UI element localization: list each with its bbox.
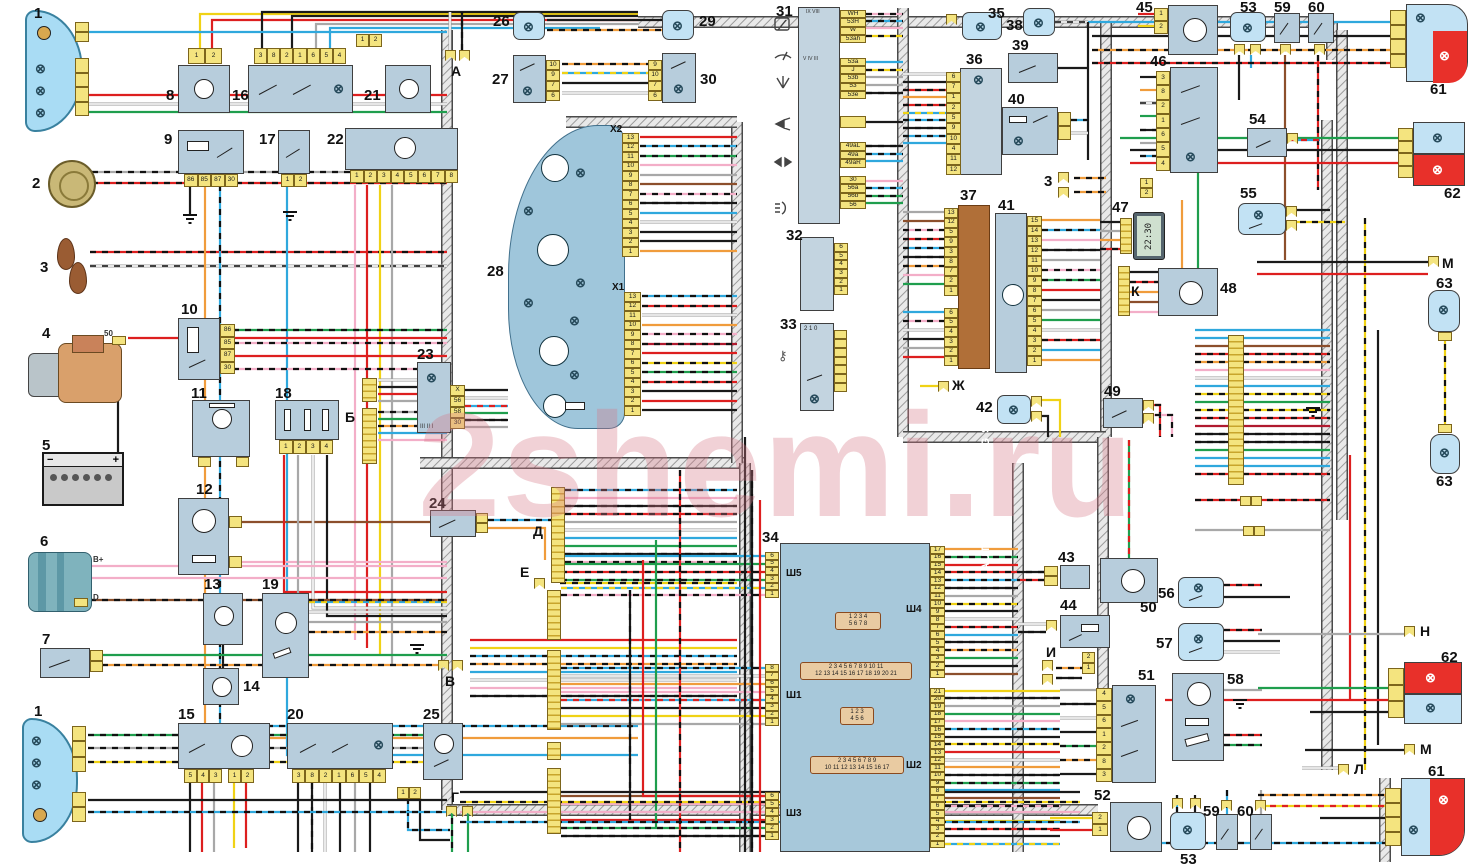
- pins-sh1: 87654321: [765, 664, 779, 726]
- relay-8: [178, 65, 230, 113]
- pin-label: 6: [648, 91, 662, 101]
- pins-40: [1058, 112, 1071, 140]
- pin-cell: [90, 661, 103, 672]
- sensor-icon: [192, 555, 216, 563]
- switch-icon: [1255, 829, 1263, 840]
- switch-icon: [1112, 410, 1127, 418]
- component-number: 4: [42, 326, 50, 341]
- pin-cell: [834, 383, 847, 392]
- column-switch-icons: [772, 16, 794, 216]
- pins-43: [1044, 566, 1058, 586]
- pins-31c: 49aL49a49aR: [840, 142, 866, 168]
- motor-icon: [1121, 569, 1145, 593]
- pins-36: 6712591041112: [946, 72, 961, 175]
- pin-11b: [236, 457, 249, 467]
- pin-label: 12: [622, 143, 639, 153]
- pin-label: 5: [930, 810, 945, 818]
- pins-20: 3821654: [292, 769, 386, 783]
- pin-label: 3: [209, 769, 222, 783]
- pins-31a: WH53HW53ah: [840, 10, 866, 43]
- switch-icon: [293, 85, 311, 95]
- component-number: 25: [423, 707, 440, 722]
- internal-plug-1: 1 2 3 4 5 6 7 8: [835, 612, 881, 630]
- resistor-icon: [1184, 733, 1209, 747]
- key-icon: ⚷: [778, 348, 788, 364]
- pin-label: 5: [1156, 142, 1170, 156]
- pin-label: 2: [364, 170, 378, 183]
- pin-label: 2: [205, 48, 222, 64]
- pin-label: 3: [765, 816, 779, 824]
- connector-strip-K: [1118, 266, 1130, 316]
- pin-cell: [1044, 566, 1058, 576]
- pins-32: 654321: [834, 243, 848, 295]
- pin-label: 4: [834, 260, 848, 269]
- pin-12a: [229, 516, 242, 528]
- pin-label: 1: [1140, 178, 1153, 188]
- connector-strip-E4: [547, 768, 561, 834]
- lamp-icon: ⊗: [1438, 303, 1449, 316]
- pin-label: 7: [930, 624, 945, 632]
- point-label-ZH: Ж: [952, 378, 965, 392]
- pin-label: 8: [1096, 755, 1112, 768]
- pin-label: 6: [1156, 128, 1170, 142]
- pin-label: 6: [834, 243, 848, 252]
- component-number: 33: [780, 317, 797, 332]
- lamp-icon: ⊗: [575, 166, 586, 179]
- pin-label: 9: [1027, 276, 1042, 286]
- pins-17: 12: [281, 174, 307, 187]
- rear-lamp-62b-blue: ⊗: [1404, 694, 1462, 724]
- pin-label: 4: [944, 327, 958, 337]
- pin-label: 9: [622, 171, 639, 181]
- pin-label: 13: [930, 749, 945, 757]
- pin-label: 6: [418, 170, 432, 183]
- pin-label: 1: [765, 590, 779, 598]
- pin-label: 11: [624, 311, 641, 321]
- pin-label: 12: [930, 757, 945, 765]
- pin-label: 1: [1156, 114, 1170, 128]
- sensor-14: [203, 668, 239, 705]
- pin-label: 6: [622, 200, 639, 210]
- plug-row: 2 3 4 5 6 7 8 9: [813, 758, 901, 765]
- pin-label: 1: [1154, 8, 1168, 21]
- motor-45: [1168, 5, 1218, 55]
- pin-label: 1: [293, 48, 306, 64]
- pin-label: 1: [397, 787, 409, 799]
- pin-starter-50: [112, 336, 126, 345]
- lamp-icon: ⊗: [1438, 793, 1449, 806]
- pins-21: 12: [356, 34, 382, 47]
- motor-21: [385, 65, 431, 113]
- relay-coil-icon: [187, 141, 209, 151]
- pin-cell: [75, 22, 89, 32]
- pin-cell: [229, 556, 242, 568]
- pin-label: 5: [624, 368, 641, 378]
- pins-31-horn: [840, 116, 866, 128]
- switch-20: ⊗: [287, 723, 393, 769]
- pin-label: 5: [359, 769, 372, 783]
- switch-icon: [1256, 140, 1271, 148]
- pin-label: 10: [1027, 266, 1042, 276]
- component-number: 5: [42, 438, 50, 453]
- pin-cell: [1398, 128, 1413, 141]
- pins-sh4: 1716151413121110987654321: [930, 546, 945, 678]
- connector-label-sh4: Ш4: [906, 604, 922, 615]
- pin-cell: [90, 650, 103, 661]
- pin-label: 14: [1027, 226, 1042, 236]
- pin-cell: [1388, 685, 1404, 702]
- component-number: 1: [34, 704, 42, 719]
- resistor-icon: [322, 409, 329, 431]
- motor-icon: [1127, 816, 1151, 840]
- clock-display: 22:30: [1137, 216, 1161, 256]
- motor-13: [203, 593, 243, 645]
- component-number: 2: [32, 176, 40, 191]
- pin-cell: [834, 365, 847, 374]
- pin-label: 7: [431, 170, 445, 183]
- pin-label: 10: [648, 70, 662, 80]
- ignition-coil-11: [192, 400, 250, 457]
- lamp-icon: ⊗: [569, 368, 580, 381]
- component-number: 63: [1436, 276, 1453, 291]
- pin-cell: [1438, 332, 1452, 341]
- rear-lamp-61-top: ⊗ ⊗: [1406, 4, 1468, 82]
- pin-label: WH: [840, 10, 866, 18]
- pin-label: 13: [944, 208, 958, 218]
- switch-icon: [520, 63, 535, 71]
- pins-51: 4561283: [1096, 688, 1112, 782]
- pins-7: [90, 650, 103, 672]
- pin-label: 10: [624, 321, 641, 331]
- component-number: 42: [976, 400, 993, 415]
- turn-signal-icon: [775, 158, 791, 166]
- pin-label: 1: [1082, 663, 1095, 674]
- component-number: 3: [1044, 174, 1052, 189]
- pin-label: 2: [280, 48, 293, 64]
- pin-label: 3: [944, 247, 958, 257]
- switch-icon: [332, 744, 348, 753]
- pin-label: 2: [622, 238, 639, 248]
- pin-label: 6: [546, 91, 560, 101]
- pin-label: 7: [1027, 296, 1042, 306]
- pin-label: 4: [930, 818, 945, 826]
- resistor-icon: [1185, 718, 1209, 726]
- pin-label: 5: [320, 48, 333, 64]
- pin-label: 12: [946, 165, 961, 175]
- pin-label: 2: [765, 711, 779, 719]
- pin-label: 7: [648, 81, 662, 91]
- point-label-D: Д: [533, 524, 543, 538]
- pin-cell: [1251, 496, 1262, 506]
- pin-label: 15: [930, 562, 945, 570]
- pin-generator-d: [74, 598, 88, 607]
- pin-label: 5: [1096, 701, 1112, 714]
- component-number: 62: [1444, 186, 1461, 201]
- pin-label: 8: [930, 616, 945, 624]
- pin-label: 8: [622, 181, 639, 191]
- pins-46: 3821654: [1156, 71, 1170, 171]
- pin-cell: [476, 513, 488, 523]
- pin-label: 7: [765, 672, 779, 680]
- internal-plug-3: 1 2 3 4 5 6: [840, 707, 874, 725]
- component-number: 18: [275, 386, 292, 401]
- pin-label: 13: [1027, 236, 1042, 246]
- switch-lamp-30: ⊗: [662, 53, 696, 103]
- point-label-B: Б: [345, 410, 355, 424]
- switch-39: [1008, 53, 1058, 83]
- pin-label: 4: [1156, 157, 1170, 171]
- switch-icon: [1189, 647, 1202, 653]
- switch-46: ⊗: [1170, 67, 1218, 173]
- pins-37b: 654321: [944, 308, 958, 366]
- pin-label: 4: [622, 219, 639, 229]
- component-number: 35: [988, 6, 1005, 21]
- pin-label: 5: [765, 800, 779, 808]
- battery-minus: −: [47, 454, 53, 466]
- pin-label: 56a: [840, 184, 866, 192]
- component-number: 36: [966, 52, 983, 67]
- pin-label: 9: [944, 237, 958, 247]
- component-number: 60: [1308, 0, 1325, 15]
- pin-label: 11: [930, 593, 945, 601]
- pin-label: 9: [930, 608, 945, 616]
- heating-system-37: AUTOMATIC HEATING SYSTEM: [958, 205, 990, 369]
- component-number: 13: [204, 577, 221, 592]
- pin-label: 6: [765, 552, 779, 560]
- component-number: 29: [699, 14, 716, 29]
- lamp-56: ⊗: [1178, 577, 1224, 608]
- component-number: 32: [786, 228, 803, 243]
- fog-lamp-icon: [37, 26, 51, 40]
- pin-label: 2: [946, 103, 961, 113]
- pin-label: 4: [765, 695, 779, 703]
- component-number: 49: [1104, 384, 1121, 399]
- lamp-icon: ⊗: [523, 204, 534, 217]
- lamp-icon: ⊗: [1439, 446, 1450, 459]
- switch-60-top: [1308, 13, 1334, 43]
- pin-label: 2: [293, 440, 307, 454]
- switch-lamp-27: ⊗: [513, 55, 546, 103]
- pin-label: 3: [930, 825, 945, 833]
- connector-strip-E3: [547, 742, 561, 760]
- gauge-icon: [543, 394, 567, 418]
- pin-label: 3: [930, 655, 945, 663]
- rear-lamp-62-top-red: ⊗: [1413, 154, 1465, 186]
- lamp-55: ⊗: [1238, 203, 1286, 235]
- switch-icon: [1181, 117, 1200, 125]
- connector-label-x2: X2: [610, 124, 622, 135]
- component-number: 21: [364, 88, 381, 103]
- pin-label: 19: [930, 703, 945, 711]
- horn-icon: [776, 118, 790, 130]
- switch-icon: [189, 744, 205, 753]
- pins-23: X565830: [450, 385, 465, 429]
- pin-label: 8: [267, 48, 280, 64]
- pin-label: 5: [404, 170, 418, 183]
- pin-label: 86: [220, 324, 235, 337]
- lamp-icon: ⊗: [523, 20, 534, 33]
- switch-icon: [1181, 85, 1200, 93]
- clock-47: 22:30: [1133, 212, 1165, 260]
- pin-cell: [72, 757, 86, 772]
- pin-label: 9: [648, 60, 662, 70]
- point-label-M: М: [1442, 256, 1454, 270]
- lamp-icon: ⊗: [1185, 150, 1196, 163]
- pins-45: 12: [1154, 8, 1168, 34]
- pins-24: [476, 513, 488, 533]
- pin-label: 87: [220, 349, 235, 362]
- component-number: 28: [487, 264, 504, 279]
- component-number: 51: [1138, 668, 1155, 683]
- component-number: 45: [1136, 0, 1153, 15]
- switch-icon: [439, 519, 456, 528]
- pin-label: 9: [624, 330, 641, 340]
- switch-icon: [1189, 595, 1202, 601]
- pin-label: 4: [765, 808, 779, 816]
- point-label-L: Л: [1354, 762, 1364, 776]
- lamp-icon: ⊗: [1439, 49, 1450, 62]
- fog-lamp-icon: [33, 808, 47, 822]
- switch-7: [40, 648, 90, 678]
- pin-label: 1: [281, 174, 294, 187]
- pin-label: 85: [220, 337, 235, 350]
- pin-label: 1: [228, 769, 241, 783]
- resistor-icon: [565, 402, 585, 410]
- connector-strip-B2: [362, 408, 377, 464]
- pin-label: 49aL: [840, 142, 866, 151]
- pin-label: 30: [220, 362, 235, 375]
- pin-cell: [75, 32, 89, 42]
- internal-plug-2: 2 3 4 5 6 7 8 9 10 11 12 13 14 15 16 17 …: [800, 662, 912, 680]
- pin-cell: [75, 73, 89, 88]
- resistor-icon: [1009, 116, 1027, 123]
- plug-row: 2 3 4 5 6 7 8 9 10 11: [803, 664, 909, 671]
- pin-63a: [1438, 332, 1452, 341]
- connector-strip-B1: [362, 378, 377, 402]
- gauge-icon: [537, 234, 569, 266]
- pin-label: 10: [546, 60, 560, 70]
- switch-49: [1103, 398, 1143, 428]
- component-number: 57: [1156, 636, 1173, 651]
- pin-label: 9: [946, 123, 961, 133]
- module-22: [345, 128, 458, 170]
- starter-solenoid: [72, 335, 104, 353]
- motor-icon: [231, 735, 253, 757]
- pin-label: 8: [1027, 286, 1042, 296]
- lamp-icon: ⊗: [1033, 16, 1044, 29]
- pin-label: 4: [624, 378, 641, 388]
- ignition-switch-33: 2 1 0 ⊗: [800, 323, 834, 411]
- pin-label: 2: [1082, 652, 1095, 663]
- pin-label: 13: [624, 292, 641, 302]
- switch-icon: [1033, 115, 1048, 123]
- pin-label: 7: [944, 267, 958, 277]
- lamp-57: ⊗: [1178, 623, 1224, 661]
- pins-sh5: 654321: [765, 552, 779, 598]
- battery: − +: [42, 452, 124, 506]
- pins-61b: [1385, 788, 1401, 846]
- resistor-block-18: [275, 400, 339, 440]
- connector-strip-E1: [547, 590, 561, 640]
- switch-icon: [1221, 829, 1229, 840]
- pin-label: 1: [624, 406, 641, 416]
- pin-label: 3: [254, 48, 267, 64]
- pin-label: 2: [624, 397, 641, 407]
- pin-cell: [840, 116, 866, 128]
- lamp-icon: ⊗: [31, 734, 42, 747]
- pin-label: 21: [930, 688, 945, 696]
- pins-headlamp2: [72, 726, 86, 772]
- lamp-icon: ⊗: [426, 371, 437, 384]
- pins-headlamp2b: [72, 792, 86, 822]
- pin-label: 8: [1156, 85, 1170, 99]
- mounting-block-34: [780, 543, 930, 852]
- component-number: 10: [181, 302, 198, 317]
- distributor-12: [178, 498, 229, 575]
- component-number: 50: [1140, 600, 1157, 615]
- pin-label: 2: [1156, 100, 1170, 114]
- lamp-icon: ⊗: [1193, 632, 1204, 645]
- relay-coil-icon: [187, 327, 199, 353]
- pin-cell: [1388, 668, 1404, 685]
- pin-label: 4: [373, 769, 386, 783]
- horn: [48, 160, 96, 208]
- lamp-icon: ⊗: [333, 82, 344, 95]
- pin-cell: [1398, 153, 1413, 166]
- motor-19: [262, 593, 309, 678]
- pin-label: 1: [622, 247, 639, 257]
- gauge-icon: [539, 336, 569, 366]
- connector-label-sh3: Ш3: [786, 808, 802, 819]
- pin-label: 6: [944, 308, 958, 318]
- component-number: 7: [42, 632, 50, 647]
- pin-label: 5: [765, 687, 779, 695]
- coil-icon: [212, 409, 232, 429]
- lamp-icon: ⊗: [1182, 823, 1193, 836]
- pin-label: J: [840, 66, 866, 74]
- license-lamp-63a: ⊗: [1428, 290, 1460, 332]
- pin-cell: [1058, 126, 1071, 140]
- point-label-G: Г: [451, 790, 459, 804]
- pin-label: 53b: [840, 74, 866, 82]
- lamp-icon: ⊗: [1013, 134, 1024, 147]
- lamp-icon: ⊗: [575, 276, 586, 289]
- pin-cell: [1388, 701, 1404, 718]
- pins-62b: [1388, 668, 1404, 718]
- pins-sh3: 654321: [765, 792, 779, 840]
- pin-label: 12: [1027, 246, 1042, 256]
- pin-cell: [1385, 803, 1401, 818]
- pin-label: 4: [333, 48, 346, 64]
- plug-row: 5 6 7 8: [838, 621, 878, 628]
- pin-label: 53: [840, 83, 866, 91]
- component-number: 61: [1430, 82, 1447, 97]
- pin-label: 2: [1096, 742, 1112, 755]
- pin-label: 7: [946, 82, 961, 92]
- switch-icon: [300, 744, 316, 753]
- pin-label: 2: [834, 278, 848, 287]
- pin-cell: [1385, 832, 1401, 847]
- point-label-A: А: [451, 64, 461, 78]
- pin-label: 6: [307, 48, 320, 64]
- motor-50: [1100, 558, 1158, 603]
- component-number: 1: [34, 6, 42, 21]
- lamp-icon: ⊗: [31, 756, 42, 769]
- pin-label: 2: [241, 769, 254, 783]
- pin-label: 8: [944, 257, 958, 267]
- terminal-50-label: 50: [104, 330, 113, 338]
- pin-label: 4: [765, 567, 779, 575]
